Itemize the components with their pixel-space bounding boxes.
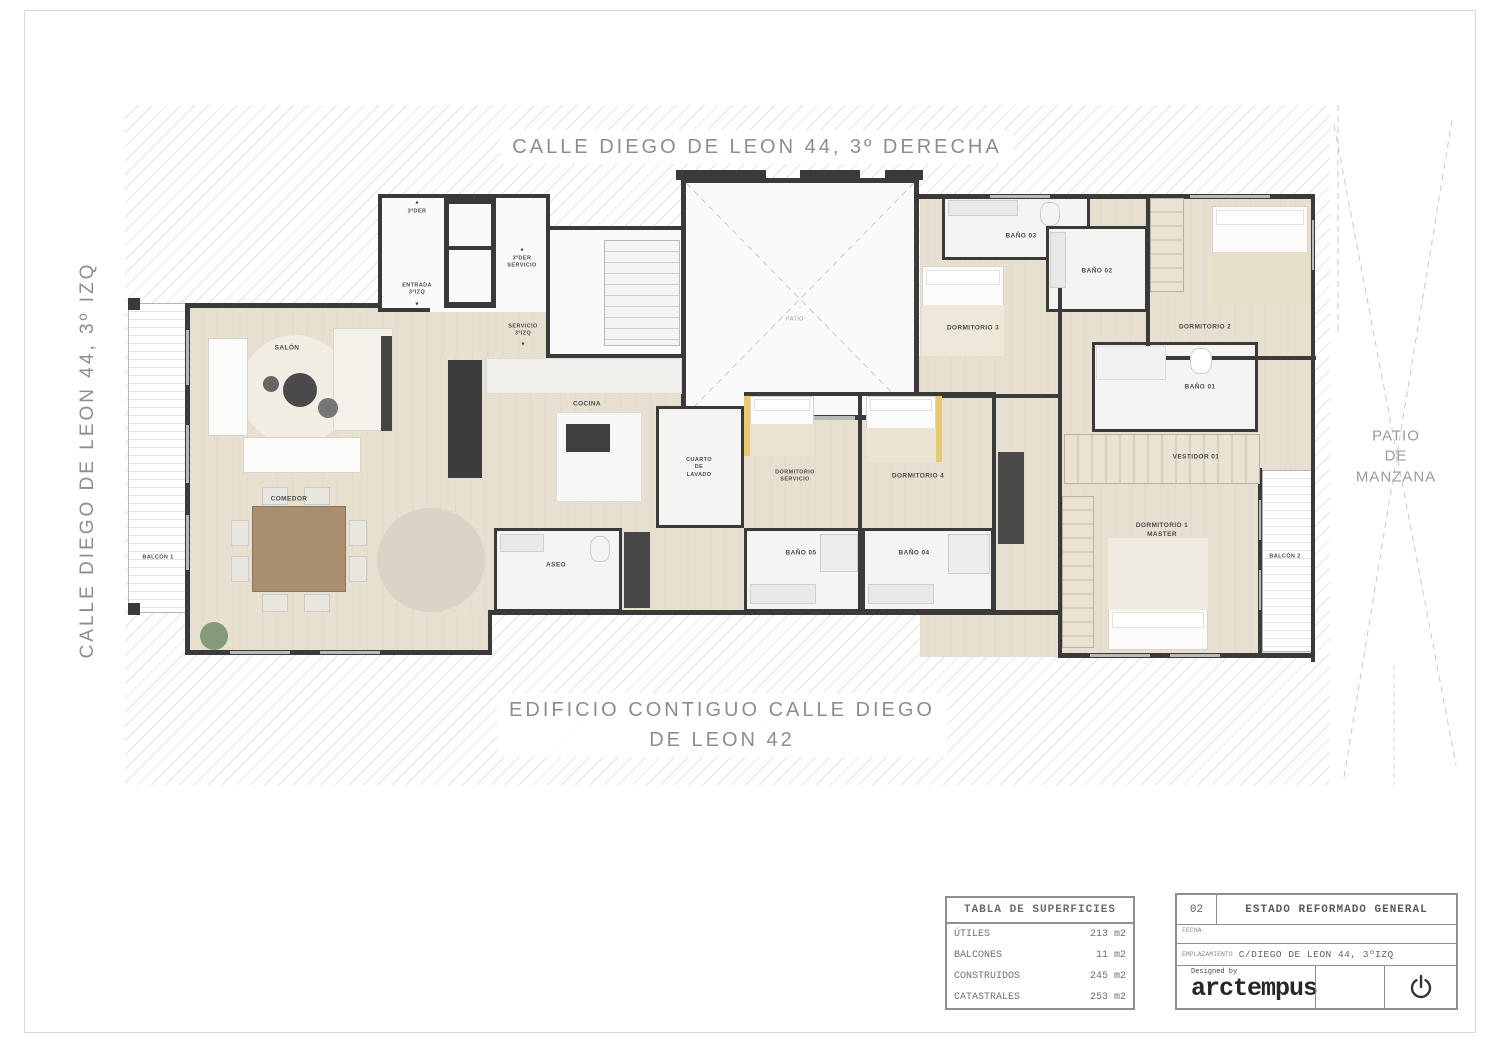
hall-cabinet — [624, 532, 650, 608]
surface-value: 245 m2 — [1090, 971, 1126, 982]
balcony-2 — [1262, 470, 1312, 652]
pillow — [754, 399, 810, 411]
vanity — [750, 584, 816, 604]
sofa — [208, 338, 248, 436]
wardrobe-vestidor — [1064, 434, 1260, 484]
patio-de-manzana-area: PATIO DE MANZANA — [1330, 105, 1462, 785]
label-entrada-3izq: ENTRADA 3ºIZQ — [402, 283, 432, 298]
power-icon — [1407, 973, 1435, 1001]
window — [1190, 195, 1270, 198]
blanket — [750, 424, 814, 456]
wall-segment — [548, 226, 686, 230]
label-comedor: COMEDOR — [271, 496, 308, 505]
balcony-post — [128, 298, 140, 310]
kitchen-counter — [486, 358, 682, 394]
label-aseo: ASEO — [546, 562, 566, 571]
empty-cell — [1315, 966, 1385, 1008]
emplazamiento-value: C/DIEGO DE LEON 44, 3ºIZQ — [1239, 949, 1394, 960]
dining-chair — [304, 487, 330, 505]
cooktop — [566, 424, 610, 452]
sheet-title: ESTADO REFORMADO GENERAL — [1217, 895, 1456, 924]
vanity — [948, 200, 1018, 216]
pillow — [1112, 612, 1204, 628]
vanity — [868, 584, 934, 604]
dining-chair — [262, 594, 288, 612]
party-wall-segment — [885, 170, 923, 180]
wall-segment — [378, 194, 382, 312]
label-dormitorio-3: DORMITORIO 3 — [947, 325, 999, 334]
dining-chair — [349, 556, 367, 582]
tv-unit — [381, 336, 392, 431]
wardrobe-dorm2 — [1150, 198, 1184, 292]
arrow-down-icon: ▼ — [521, 343, 526, 348]
title-block-header: 02 ESTADO REFORMADO GENERAL — [1177, 895, 1456, 925]
arrow-up-icon: ▲ — [520, 248, 525, 253]
coffee-table — [283, 373, 317, 407]
dining-chair — [349, 520, 367, 546]
pillow — [1216, 210, 1304, 225]
label-dormitorio-4: DORMITORIO 4 — [892, 473, 944, 482]
pillow — [870, 399, 932, 411]
surface-label: CONSTRUIDOS — [954, 971, 1020, 982]
emplazamiento-row: EMPLAZAMIENTO C/DIEGO DE LEON 44, 3ºIZQ — [1177, 944, 1456, 966]
side-table — [318, 398, 338, 418]
wall-segment — [858, 392, 862, 612]
window — [990, 195, 1050, 198]
staircase — [604, 240, 680, 346]
label-balcon-1: BALCÓN 1 — [142, 554, 173, 561]
blanket — [1212, 252, 1308, 304]
balcony-1 — [128, 303, 187, 613]
side-table — [263, 376, 279, 392]
elevator-cab — [449, 250, 491, 302]
patio-court — [681, 178, 919, 420]
label-acceso-3der: 3ºDER — [408, 208, 427, 215]
brand-logo: Designed by arctempus — [1177, 966, 1315, 1008]
window — [186, 425, 189, 483]
duvet — [1108, 538, 1208, 610]
surface-value: 253 m2 — [1090, 992, 1126, 1003]
wall-segment — [488, 610, 1065, 615]
label-cocina: COCINA — [573, 401, 601, 410]
surface-label: ÚTILES — [954, 929, 990, 940]
window — [1090, 654, 1150, 657]
surface-label: CATASTRALES — [954, 992, 1020, 1003]
label-patio: PATIO — [786, 316, 804, 323]
wall-segment — [546, 194, 550, 358]
patio-manzana-label: PATIO DE MANZANA — [1356, 427, 1436, 488]
surface-table: TABLA DE SUPERFICIES ÚTILES 213 m2 BALCO… — [945, 896, 1135, 1010]
window — [186, 330, 189, 385]
party-wall-segment — [676, 170, 766, 180]
toilet — [1040, 202, 1060, 226]
balcony-post — [128, 603, 140, 615]
title-block: 02 ESTADO REFORMADO GENERAL FECHA EMPLAZ… — [1175, 893, 1458, 1010]
surface-table-title: TABLA DE SUPERFICIES — [947, 898, 1133, 924]
window — [1259, 500, 1261, 540]
window — [320, 651, 380, 654]
vanity — [1050, 232, 1066, 288]
brand-name: arctempus — [1191, 976, 1315, 1001]
blueprint-page: PATIO DE MANZANA CALLE DIEGO DE LEON 44,… — [0, 0, 1500, 1059]
surface-value: 213 m2 — [1090, 929, 1126, 940]
elevator-cab — [449, 204, 491, 246]
wardrobe-master — [1062, 496, 1094, 648]
arrow-down-icon: ▼ — [415, 303, 420, 308]
wall-segment — [185, 303, 382, 308]
surface-label: BALCONES — [954, 950, 1002, 961]
fecha-row: FECHA — [1177, 925, 1456, 944]
window — [1312, 220, 1314, 270]
surface-row: CATASTRALES 253 m2 — [947, 987, 1133, 1008]
surface-value: 11 m2 — [1096, 950, 1126, 961]
plant — [200, 622, 228, 650]
corridor-closet — [998, 452, 1024, 544]
dining-chair — [231, 556, 249, 582]
dining-chair — [231, 520, 249, 546]
toilet — [590, 536, 610, 562]
shower — [948, 534, 990, 574]
dining-chair — [304, 594, 330, 612]
power-cell — [1385, 966, 1456, 1008]
toilet — [1190, 348, 1212, 374]
wall-segment — [1146, 356, 1316, 360]
shower — [820, 534, 858, 572]
sofa — [243, 437, 361, 473]
arrow-up-icon: ▲ — [415, 201, 420, 206]
label-dormitorio-1-master: DORMITORIO 1 MASTER — [1136, 522, 1188, 540]
vanity — [500, 534, 544, 552]
window — [230, 651, 290, 654]
label-bano-04: BAÑO 04 — [899, 550, 930, 559]
party-wall-segment — [800, 170, 860, 180]
emplazamiento-label: EMPLAZAMIENTO — [1182, 951, 1233, 958]
label-dormitorio-servicio: DORMITORIO SERVICIO — [775, 470, 815, 485]
label-vestidor-01: VESTIDOR 01 — [1173, 454, 1220, 463]
label-bano-02: BAÑO 02 — [1082, 268, 1113, 277]
label-dormitorio-2: DORMITORIO 2 — [1179, 324, 1231, 333]
street-label-top: CALLE DIEGO DE LEON 44, 3º DERECHA — [500, 130, 1013, 164]
label-servicio-3der: 3ºDER SERVICIO — [507, 256, 536, 271]
label-bano-01: BAÑO 01 — [1185, 384, 1216, 393]
surface-row: ÚTILES 213 m2 — [947, 924, 1133, 945]
wall-segment — [682, 226, 686, 358]
label-balcon-2: BALCÓN 2 — [1269, 553, 1300, 560]
window — [1170, 654, 1220, 657]
patio-cross-lines-icon — [686, 183, 914, 415]
window — [186, 515, 189, 570]
label-cuarto-lavado: CUARTO DE LAVADO — [686, 457, 712, 479]
surface-row: BALCONES 11 m2 — [947, 945, 1133, 966]
label-bano-03: BAÑO 03 — [1006, 233, 1037, 242]
round-rug — [377, 508, 485, 612]
street-label-bottom: EDIFICIO CONTIGUO CALLE DIEGO DE LEON 42 — [497, 693, 947, 757]
kitchen-appliance-column — [448, 360, 482, 478]
sheet-number: 02 — [1177, 895, 1217, 924]
wall-segment — [378, 308, 430, 312]
window — [1259, 570, 1261, 610]
wall-segment — [1258, 468, 1262, 654]
surface-row: CONSTRUIDOS 245 m2 — [947, 966, 1133, 987]
street-label-left: CALLE DIEGO DE LEON 44, 3º IZQ — [72, 250, 105, 671]
bed-runner — [936, 396, 942, 462]
wall-segment — [992, 392, 996, 612]
dining-table — [252, 506, 346, 592]
label-salon: SALÓN — [275, 345, 300, 354]
label-bano-05: BAÑO 05 — [786, 550, 817, 559]
label-servicio-3izq: SERVICIO 3ºIZQ — [508, 324, 537, 339]
wall-segment — [488, 612, 492, 655]
bathtub — [1096, 346, 1166, 380]
pillow — [926, 270, 1000, 285]
blanket — [866, 428, 936, 462]
brand-row: Designed by arctempus — [1177, 966, 1456, 1008]
